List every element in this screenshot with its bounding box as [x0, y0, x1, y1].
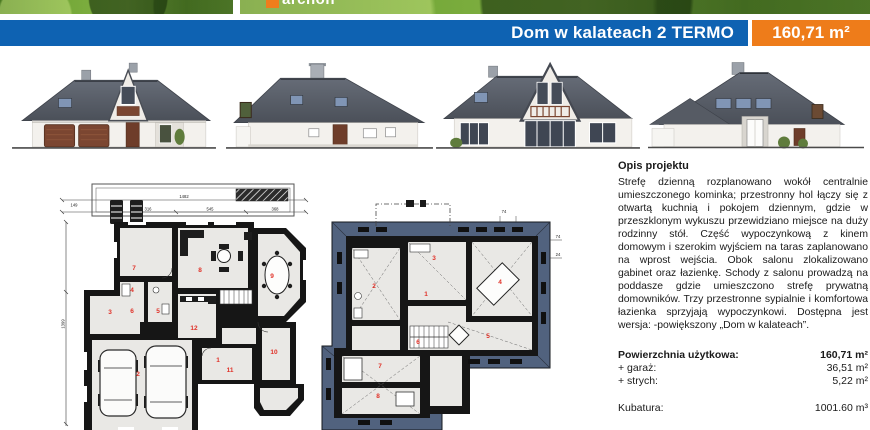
- spec-table: Powierzchnia użytkowa: 160,71 m² + garaż…: [618, 349, 868, 415]
- watermark-logo: archon: [266, 0, 335, 8]
- elevation-garden-drawing: [432, 58, 644, 154]
- spec-row-cubature: Kubatura: 1001.60 m³: [618, 402, 868, 415]
- room-number: 11: [227, 367, 234, 374]
- room-number: 4: [498, 279, 502, 286]
- dim-label: 74: [556, 234, 561, 239]
- elevation-front-drawing: [8, 58, 220, 154]
- room-number: 1: [216, 357, 220, 364]
- description-heading: Opis projektu: [618, 160, 868, 172]
- elevation-side-right-drawing: [646, 58, 868, 154]
- car-2: [146, 346, 186, 418]
- spec-row-attic: + strych: 5,22 m²: [618, 375, 868, 388]
- floor-plan-ground: 1482 316 545 368 149 1399: [58, 172, 310, 430]
- elevation-side-left-drawing: [224, 58, 436, 154]
- catalog-page: archon Dom w kalateach 2 TERMO 160,71 m²: [0, 0, 870, 430]
- room-number: 4: [130, 287, 134, 294]
- room-number: 2: [136, 371, 140, 378]
- room-number: 3: [432, 255, 436, 262]
- room-number: 12: [190, 325, 198, 332]
- dim-label: 316: [145, 206, 153, 211]
- room-number: 7: [378, 363, 382, 370]
- room-number: 3: [108, 309, 112, 316]
- spec-label: Kubatura:: [618, 402, 664, 415]
- photo-strip-right: archon: [240, 0, 870, 14]
- spec-row-usable-area: Powierzchnia użytkowa: 160,71 m²: [618, 349, 868, 362]
- room-number: 6: [416, 339, 420, 346]
- room-number: 5: [486, 333, 490, 340]
- logo-mark-icon: [266, 0, 279, 8]
- description-column: Opis projektu Strefę dzienną rozplanowan…: [618, 160, 868, 415]
- spec-label: + garaż:: [618, 362, 656, 375]
- car-1: [100, 350, 136, 416]
- room-number: 8: [198, 267, 202, 274]
- room-number: 8: [376, 393, 380, 400]
- room-number: 2: [372, 283, 376, 290]
- dim-label: 1482: [179, 194, 189, 199]
- room-number: 5: [156, 308, 160, 315]
- spec-value: 36,51 m²: [827, 362, 868, 375]
- project-title: Dom w kalateach 2 TERMO: [511, 20, 734, 46]
- dim-label: 1399: [61, 319, 66, 329]
- spec-value: 5,22 m²: [832, 375, 868, 388]
- room-number: 9: [270, 273, 274, 280]
- room-number: 6: [130, 308, 134, 315]
- spec-label: Powierzchnia użytkowa:: [618, 349, 739, 362]
- area-badge: 160,71 m²: [752, 20, 870, 46]
- pergola-hatch: [236, 189, 288, 201]
- dim-label: 149: [71, 203, 79, 208]
- floor-plan-upper: 74 74 24 1 2 3 4 5 6 7 8: [318, 196, 610, 430]
- dim-label: 368: [272, 206, 280, 211]
- spec-row-garage: + garaż: 36,51 m²: [618, 362, 868, 375]
- watermark-logo-text: archon: [282, 0, 335, 8]
- room-number: 1: [424, 291, 428, 298]
- room-number: 7: [132, 265, 136, 272]
- description-body: Strefę dzienną rozplanowano wokół centra…: [618, 176, 868, 332]
- dim-label: 545: [207, 206, 215, 211]
- spec-value: 1001.60 m³: [815, 402, 868, 415]
- title-bar: Dom w kalateach 2 TERMO: [0, 20, 748, 46]
- photo-strip-left: [0, 0, 233, 14]
- room-number: 10: [270, 349, 278, 356]
- spec-value: 160,71 m²: [820, 349, 868, 362]
- dim-label: 74: [502, 209, 507, 214]
- dim-label: 24: [556, 252, 561, 257]
- spec-label: + strych:: [618, 375, 658, 388]
